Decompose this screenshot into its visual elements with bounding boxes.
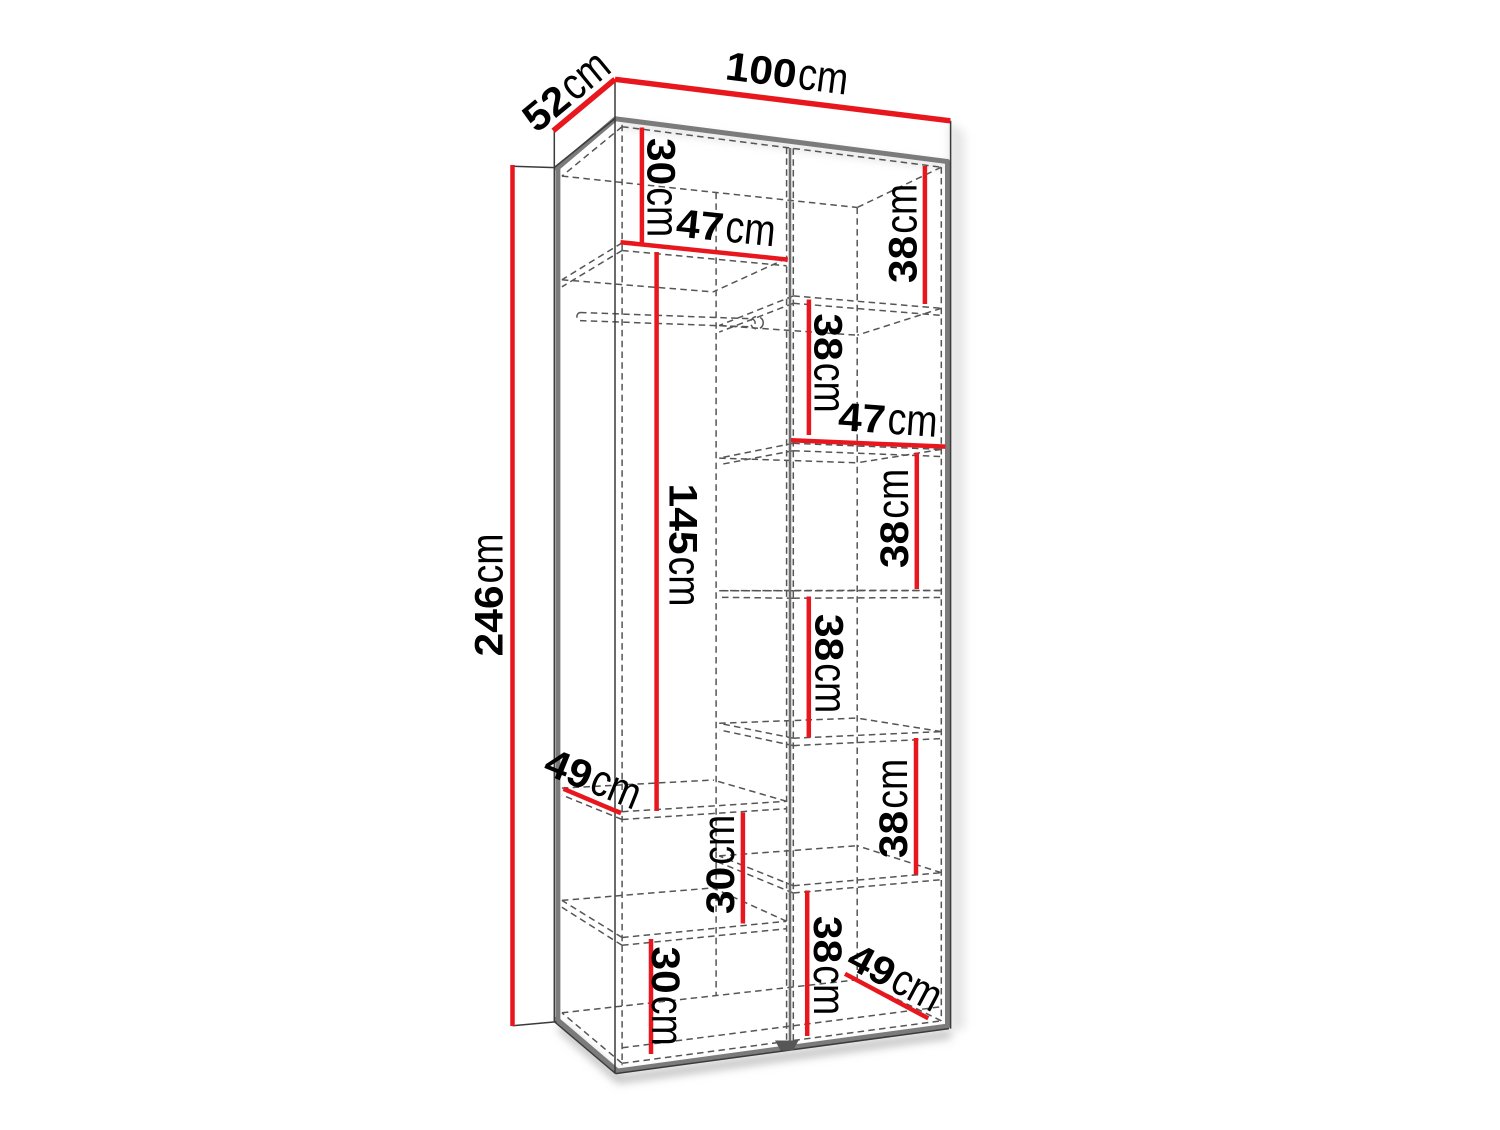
svg-text:cm: cm (806, 663, 857, 713)
svg-text:cm: cm (886, 393, 939, 447)
svg-text:cm: cm (867, 469, 918, 519)
svg-text:cm: cm (795, 48, 851, 105)
svg-text:cm: cm (462, 534, 513, 584)
svg-text:47: 47 (837, 395, 887, 442)
svg-text:246: 246 (468, 585, 512, 656)
svg-text:cm: cm (723, 201, 778, 257)
svg-text:cm: cm (660, 557, 711, 607)
svg-text:cm: cm (642, 996, 693, 1046)
svg-text:38: 38 (806, 313, 850, 360)
svg-text:38: 38 (805, 916, 849, 963)
svg-text:47: 47 (674, 202, 726, 251)
svg-text:38: 38 (873, 521, 917, 568)
svg-text:38: 38 (882, 236, 926, 283)
svg-text:cm: cm (876, 184, 927, 234)
svg-text:30: 30 (643, 946, 687, 993)
svg-text:38: 38 (872, 811, 916, 858)
svg-text:145: 145 (661, 484, 705, 555)
svg-text:cm: cm (866, 759, 917, 809)
svg-text:30: 30 (639, 138, 683, 185)
svg-text:cm: cm (693, 815, 744, 865)
svg-text:30: 30 (699, 867, 743, 914)
svg-text:100: 100 (723, 44, 799, 97)
svg-text:38: 38 (807, 614, 851, 661)
